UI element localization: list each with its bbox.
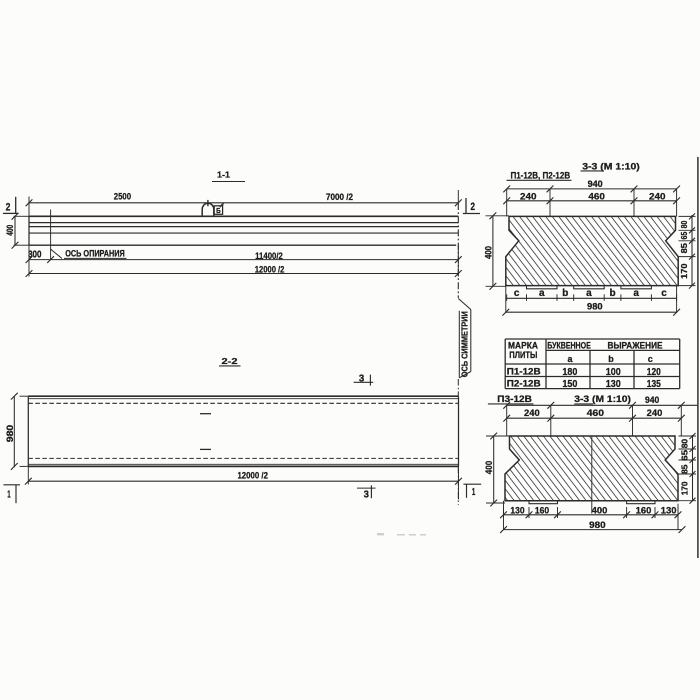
svg-text:ОСЬ ОПИРАНИЯ: ОСЬ ОПИРАНИЯ [65,248,125,258]
svg-text:П2-12В: П2-12В [507,378,541,388]
svg-text:11400/2: 11400/2 [255,251,283,262]
svg-text:а: а [633,288,639,299]
svg-text:БУКВЕННОЕ: БУКВЕННОЕ [547,341,591,351]
svg-text:130: 130 [510,506,524,516]
svg-text:3-3 (М 1:10): 3-3 (М 1:10) [574,394,631,404]
svg-text:1: 1 [472,486,475,498]
svg-text:65: 65 [680,231,689,239]
svg-text:980: 980 [587,302,603,312]
svg-text:ПЛИТЫ: ПЛИТЫ [509,350,537,360]
svg-text:7000 /2: 7000 /2 [326,192,353,203]
svg-text:120: 120 [647,367,661,378]
svg-text:85: 85 [681,464,690,474]
svg-text:с: с [514,288,520,299]
svg-text:240: 240 [649,192,666,203]
svg-text:130: 130 [661,506,677,516]
svg-text:65: 65 [681,449,690,461]
svg-text:80: 80 [681,438,690,448]
svg-text:3-3 (М 1:10): 3-3 (М 1:10) [582,162,640,172]
svg-text:240: 240 [647,408,663,419]
svg-text:b: b [608,354,614,364]
svg-text:135: 135 [647,379,661,390]
svg-text:160: 160 [535,506,549,516]
svg-text:980: 980 [5,425,16,443]
svg-text:100: 100 [606,367,621,378]
svg-text:с: с [661,288,667,299]
svg-text:170: 170 [680,263,689,279]
svg-text:400: 400 [483,246,493,259]
svg-text:1: 1 [7,488,10,500]
svg-text:12000 /2: 12000 /2 [255,265,285,276]
svg-text:с: с [648,354,653,364]
svg-text:П1-12В: П1-12В [507,367,541,377]
svg-text:а: а [539,288,545,299]
svg-text:b: b [562,288,568,299]
svg-text:П3-12В: П3-12В [497,394,532,404]
svg-text:940: 940 [588,179,603,189]
svg-text:80: 80 [680,220,689,228]
svg-text:130: 130 [606,379,621,390]
svg-text:2500: 2500 [114,191,131,202]
svg-text:3: 3 [364,489,369,501]
svg-text:2-2: 2-2 [222,356,238,366]
svg-text:170: 170 [681,481,690,495]
svg-text:400: 400 [5,225,15,236]
svg-text:1-1: 1-1 [217,170,230,180]
svg-text:b: b [609,288,615,299]
svg-text:460: 460 [588,192,605,203]
svg-text:2: 2 [6,202,11,214]
svg-text:240: 240 [524,408,540,419]
svg-text:МАРКА: МАРКА [508,340,539,350]
svg-text:150: 150 [562,379,577,390]
svg-text:180: 180 [562,367,577,378]
svg-text:ВЫРАЖЕНИЕ: ВЫРАЖЕНИЕ [608,341,663,351]
svg-text:980: 980 [589,520,606,530]
svg-text:12000 /2: 12000 /2 [237,470,268,481]
svg-text:160: 160 [636,506,652,516]
svg-text:П1-12В, П2-12В: П1-12В, П2-12В [510,171,570,181]
svg-text:460: 460 [587,408,604,419]
svg-text:ОСЬ СИММЕТРИИ: ОСЬ СИММЕТРИИ [459,311,469,377]
svg-text:85: 85 [680,243,689,254]
svg-text:400: 400 [592,506,608,516]
svg-text:а: а [586,288,592,299]
svg-text:400: 400 [484,461,494,475]
svg-text:240: 240 [520,192,537,203]
svg-text:940: 940 [645,395,659,405]
svg-text:2: 2 [471,201,476,213]
